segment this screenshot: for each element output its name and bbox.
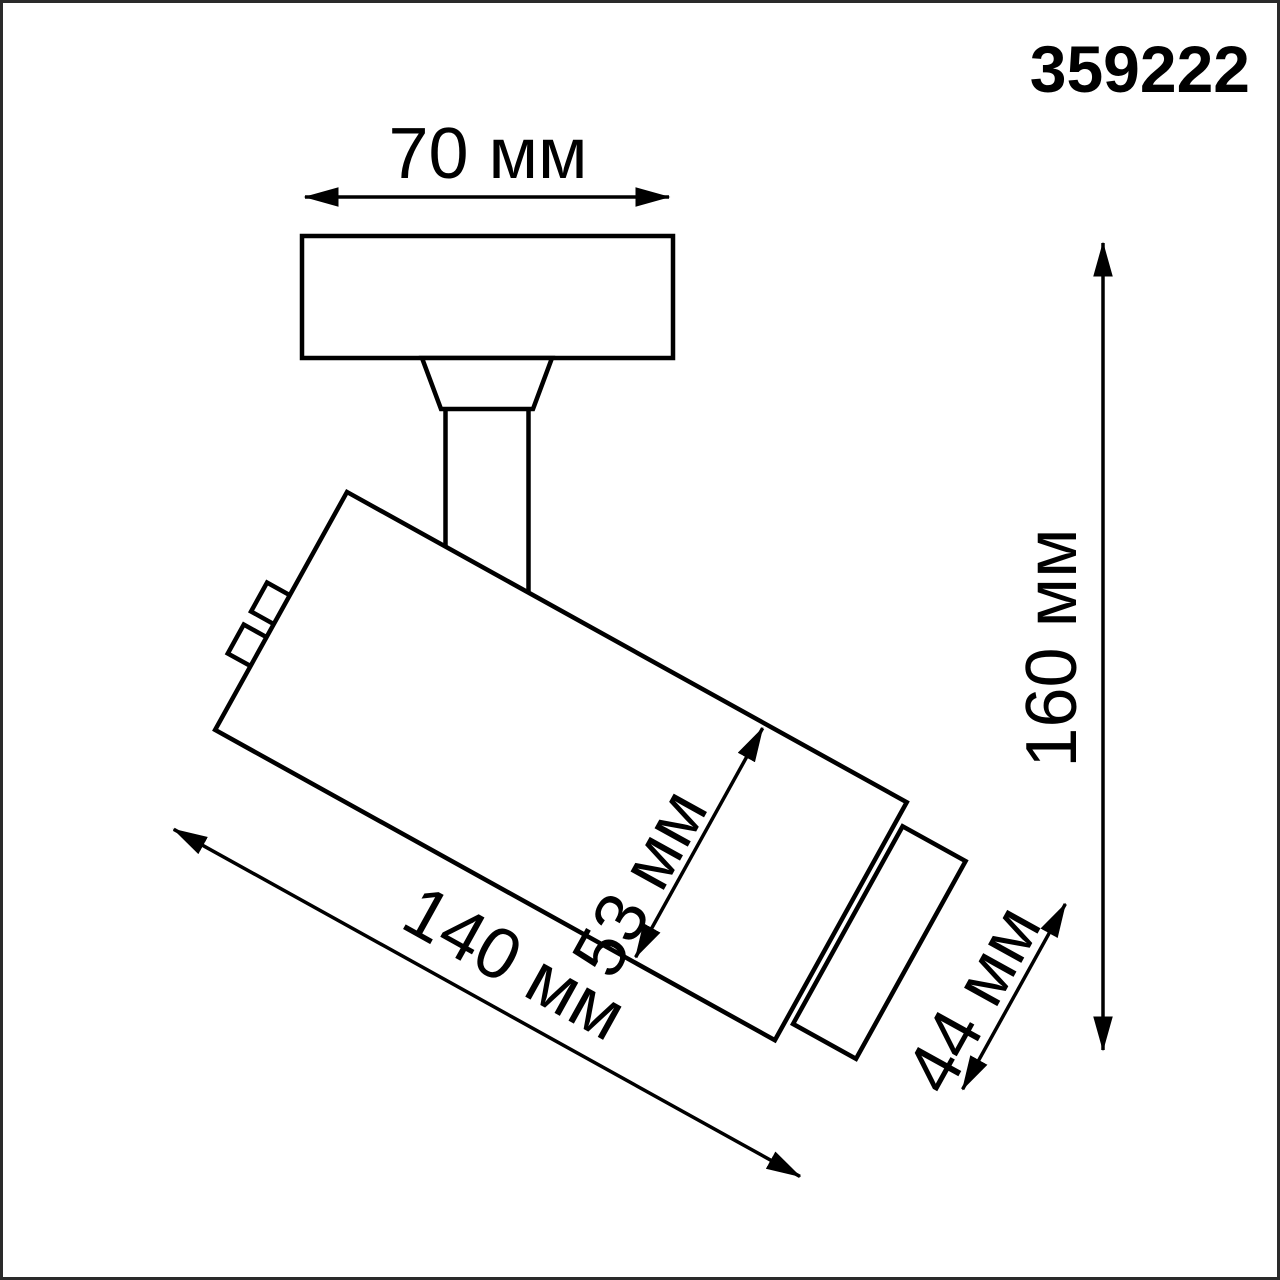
product-code: 359222	[1030, 32, 1250, 106]
mounting-base	[302, 236, 673, 358]
drawing-page: 359222 70 мм 53 мм 140 мм 44 мм	[0, 0, 1280, 1280]
mounting-neck	[422, 358, 552, 409]
lamp-assembly: 53 мм 140 мм 44 мм	[141, 479, 1077, 1227]
dim-label-total-height: 160 мм	[1012, 528, 1092, 767]
dim-label-base-width: 70 мм	[388, 114, 587, 194]
technical-drawing: 359222 70 мм 53 мм 140 мм 44 мм	[0, 0, 1280, 1280]
